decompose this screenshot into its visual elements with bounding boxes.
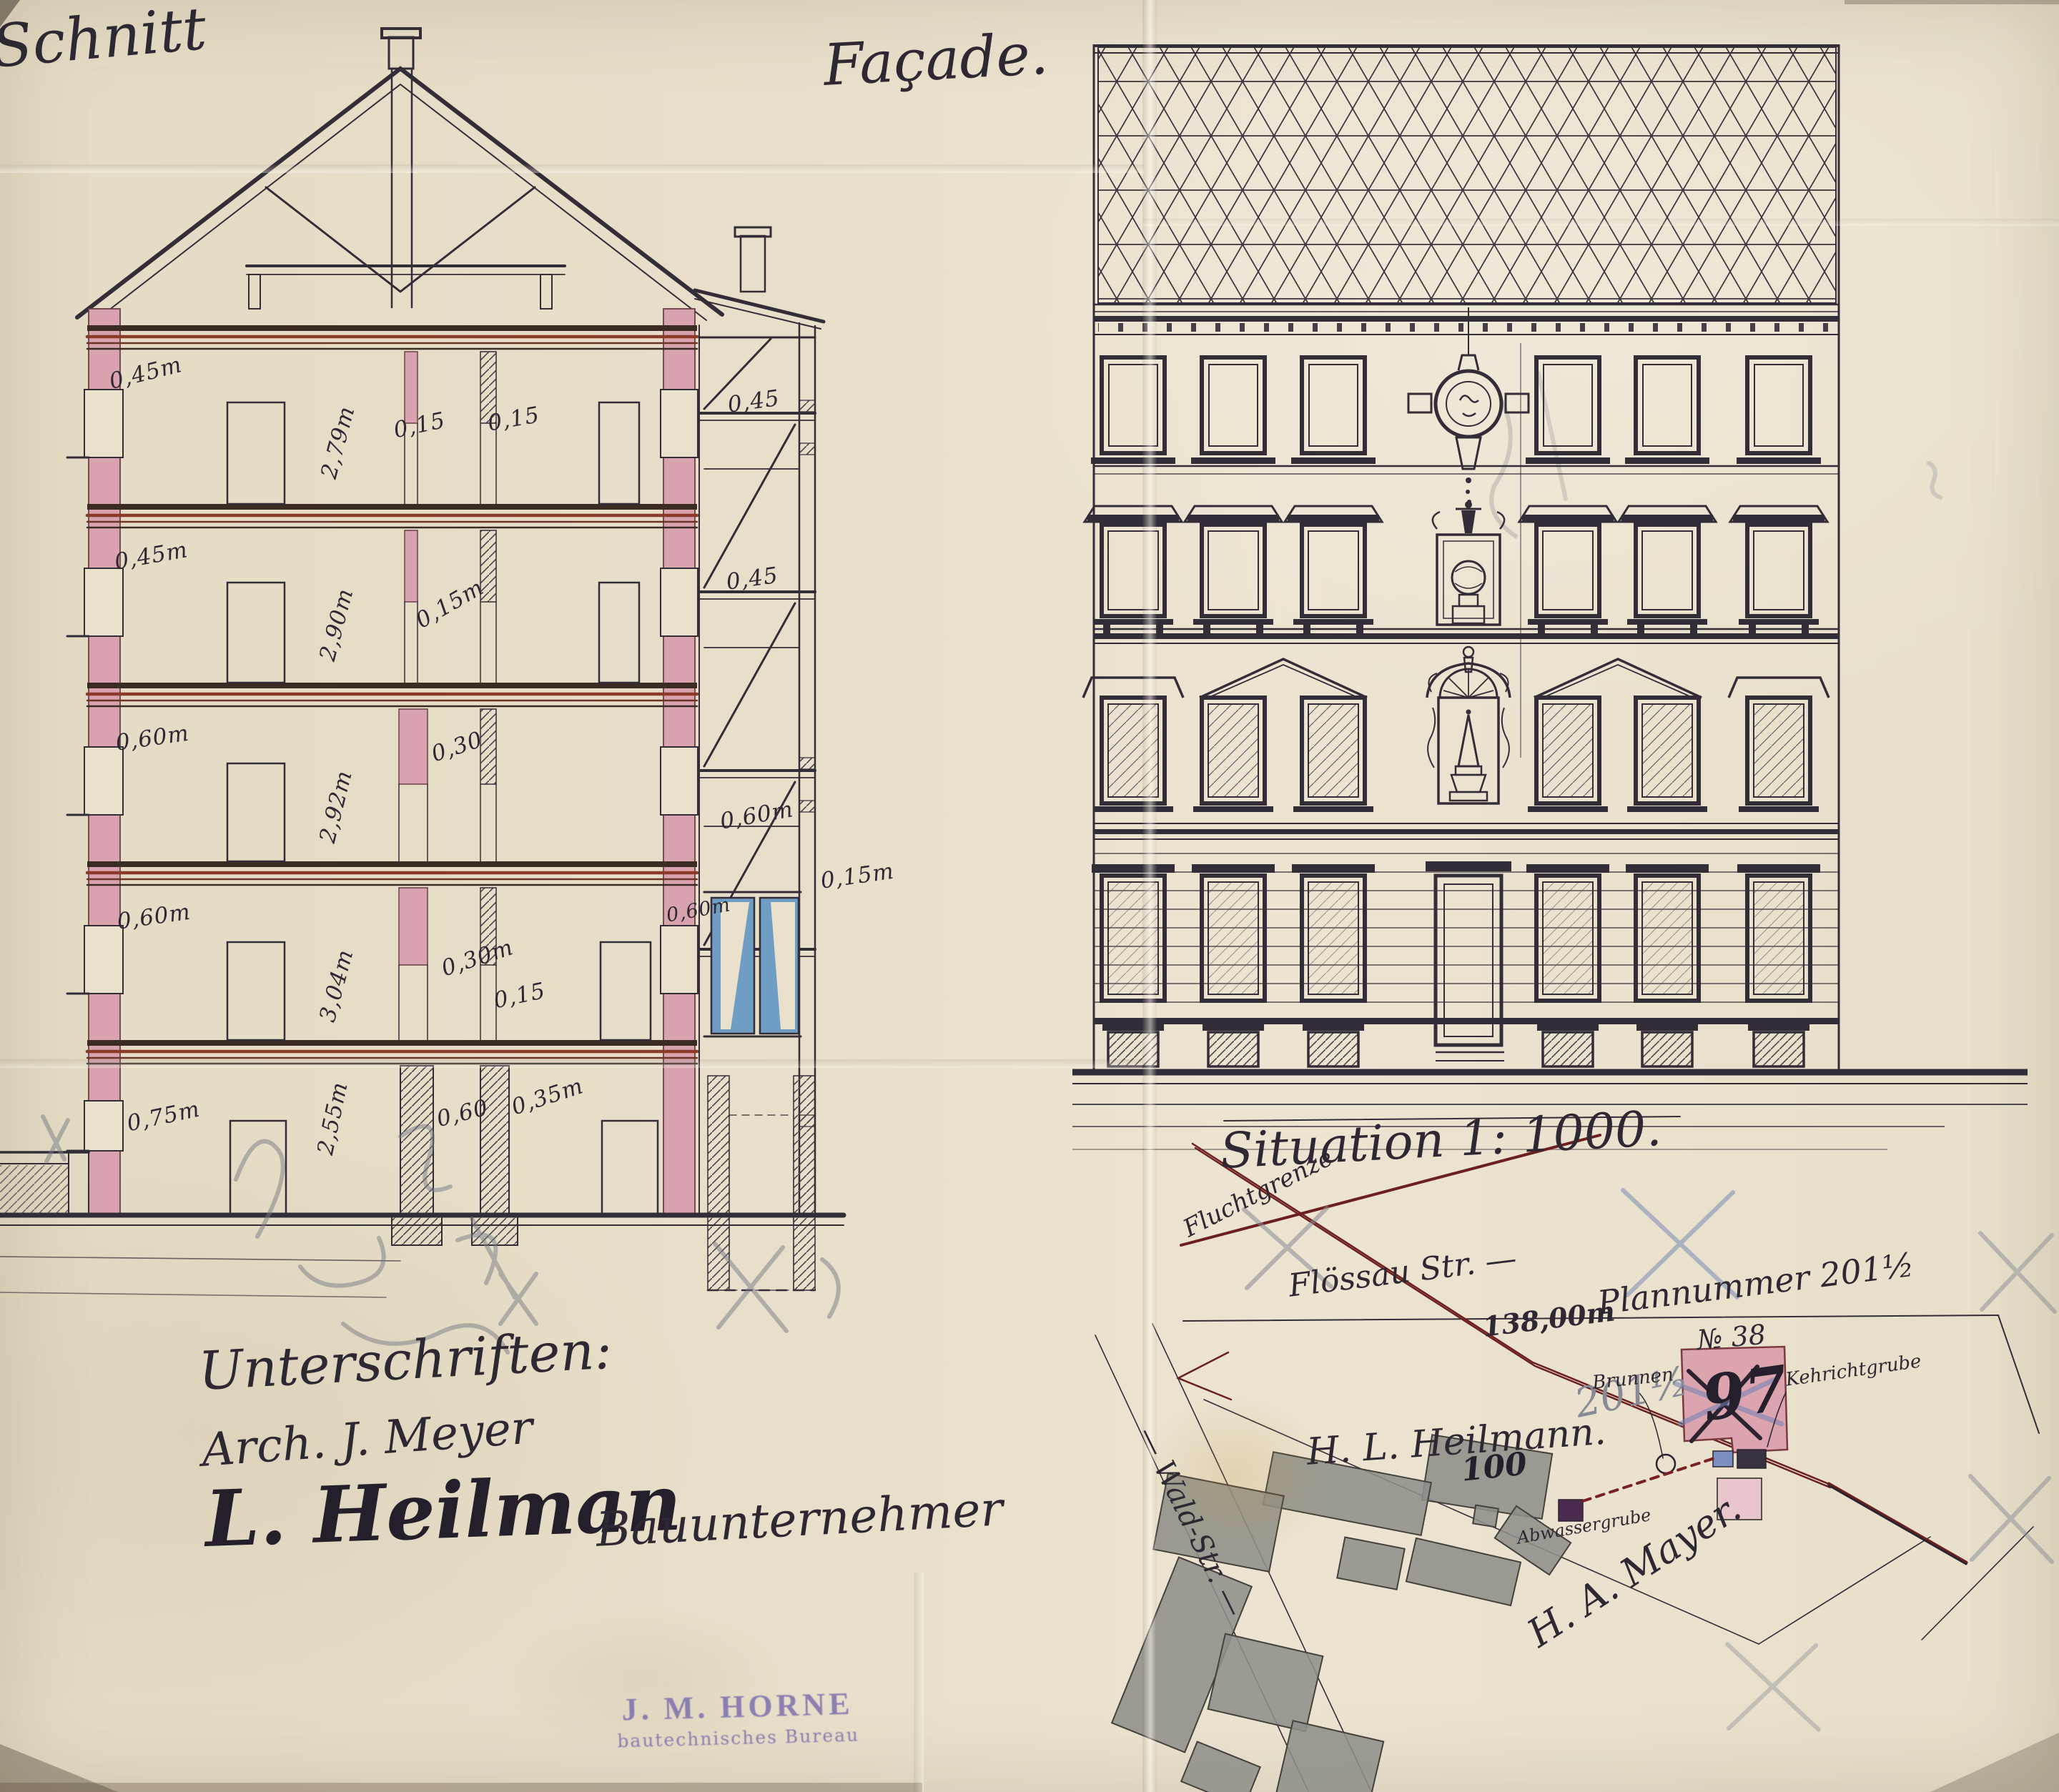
plot-number: № 38 xyxy=(1696,1321,1767,1354)
facade-roof xyxy=(1098,47,1836,303)
drawing-sheet: Schnitt Façade. Situation 1: 1000. Fluch… xyxy=(0,0,2059,1792)
stamp-name: J. M. HORNE xyxy=(616,1685,859,1728)
section-walls xyxy=(67,309,698,1215)
facade-title: Façade. xyxy=(822,26,1050,94)
old-plot-number: 97 xyxy=(1699,1357,1792,1430)
roof-truss xyxy=(77,29,722,320)
facade-drawing xyxy=(1072,44,2028,1149)
building-number: 100 xyxy=(1460,1448,1529,1486)
bureau-stamp: J. M. HORNE bautechnisches Bureau xyxy=(616,1685,860,1752)
annex-wing xyxy=(695,227,824,1290)
